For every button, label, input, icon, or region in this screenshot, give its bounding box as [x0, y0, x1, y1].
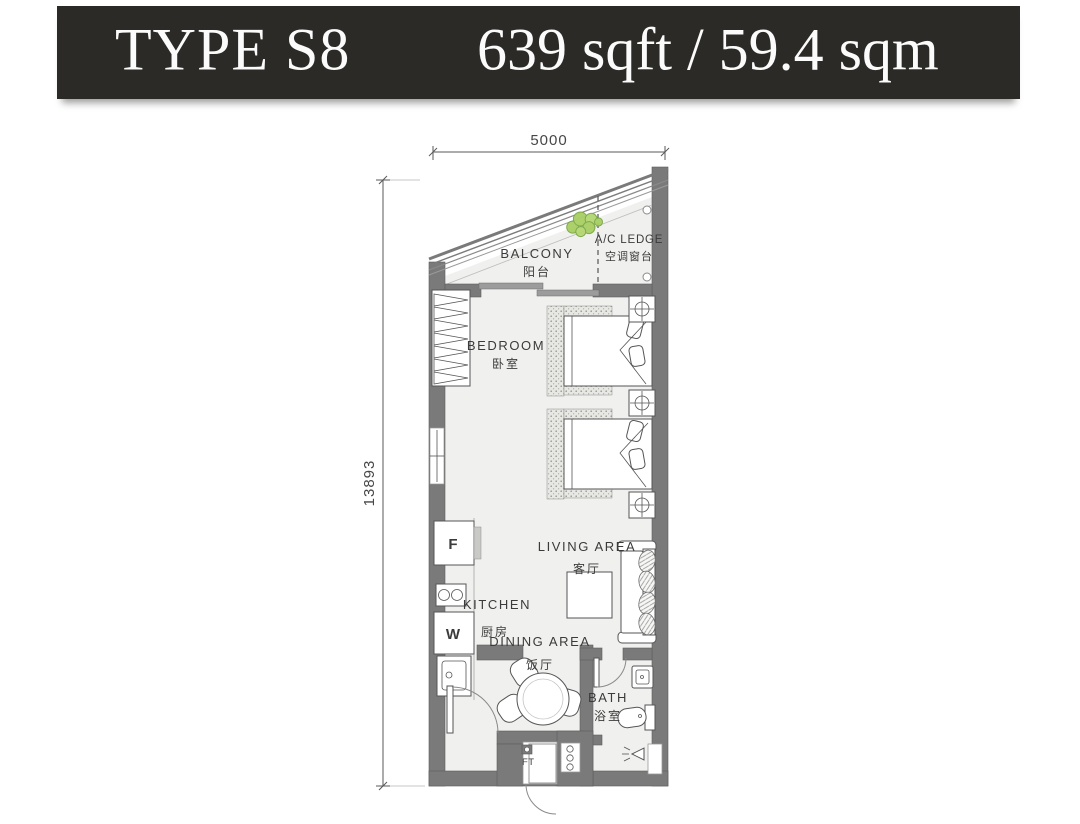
bath-top-wall-right	[623, 648, 652, 660]
washer-label: W	[446, 626, 461, 643]
shower-niche	[648, 744, 662, 774]
floor-plan: FT 5000 13893 BALCONY 阳台 A/C LEDGE 空调	[0, 0, 1080, 824]
bath-sink	[632, 666, 653, 688]
dimension-left: 13893	[361, 176, 425, 790]
nightstand-lamp	[629, 492, 655, 518]
balcony-wall-right	[593, 284, 652, 297]
wardrobe	[432, 290, 470, 386]
entry-pillar-left	[497, 744, 523, 786]
bedroom-label-zh: 卧室	[492, 356, 520, 371]
bath-label-zh: 浴室	[594, 708, 622, 723]
bath-label: BATH	[588, 690, 628, 705]
kitchen-sink	[437, 656, 471, 696]
right-wall	[652, 167, 668, 786]
living-area-label: LIVING AREA	[538, 539, 637, 554]
dining-area-label-zh: 饭厅	[526, 658, 554, 672]
nightstand-lamp	[629, 390, 655, 416]
bedroom-window	[430, 428, 444, 484]
entry-door: FT	[522, 742, 557, 814]
kitchen-label: KITCHEN	[463, 597, 531, 612]
nightstand-lamp	[629, 296, 655, 322]
bedroom-label: BEDROOM	[467, 338, 545, 353]
stove	[436, 584, 466, 606]
floor-plan-page: TYPE S8 639 sqft / 59.4 sqm	[0, 0, 1080, 824]
bed-2	[547, 409, 652, 499]
sliding-door-panel	[479, 283, 543, 289]
ft-label: FT	[522, 757, 535, 768]
ft-icon	[522, 745, 532, 754]
dimension-top: 5000	[429, 132, 669, 160]
balcony-label-zh: 阳台	[523, 264, 551, 279]
dimension-width-label: 5000	[530, 132, 567, 149]
ac-ledge-label-zh: 空调窗台	[605, 249, 653, 263]
dimension-height-label: 13893	[361, 460, 378, 507]
ac-ledge-label: A/C LEDGE	[595, 234, 664, 246]
coffee-table	[567, 572, 612, 618]
fridge-label: F	[448, 536, 457, 553]
sofa	[618, 541, 657, 643]
utility-niche	[561, 743, 580, 772]
living-area-label-zh: 客厅	[573, 561, 601, 576]
balcony-label: BALCONY	[500, 246, 573, 261]
sliding-door-panel	[537, 290, 599, 296]
dining-area-label: DINING AREA	[489, 634, 590, 649]
